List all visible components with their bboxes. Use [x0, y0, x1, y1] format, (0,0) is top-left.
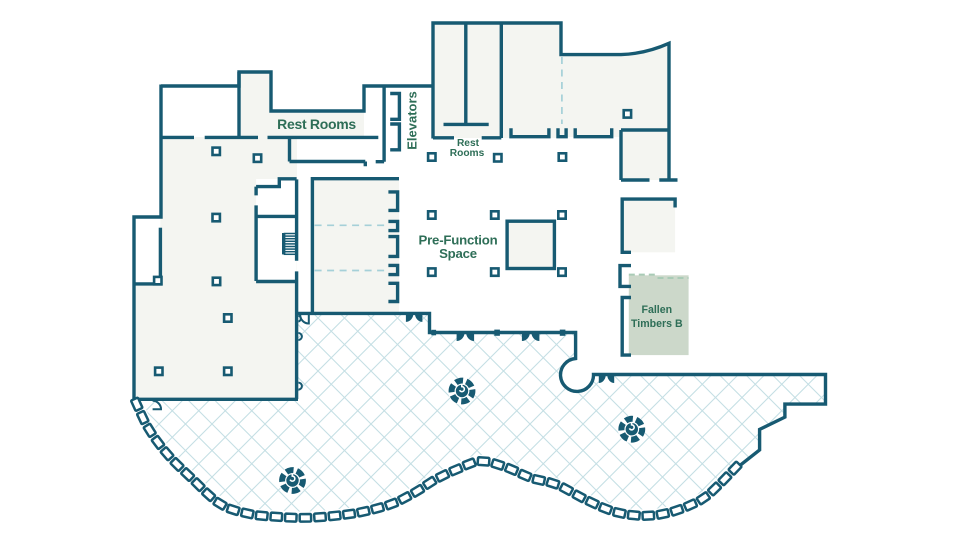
svg-text:Space: Space: [439, 246, 477, 261]
svg-text:Timbers B: Timbers B: [631, 318, 683, 330]
svg-text:Rooms: Rooms: [450, 148, 485, 159]
svg-text:Fallen: Fallen: [641, 304, 672, 316]
svg-text:Rest Rooms: Rest Rooms: [277, 116, 356, 132]
svg-text:Elevators: Elevators: [405, 91, 420, 150]
svg-text:Pre-Function: Pre-Function: [419, 232, 498, 247]
